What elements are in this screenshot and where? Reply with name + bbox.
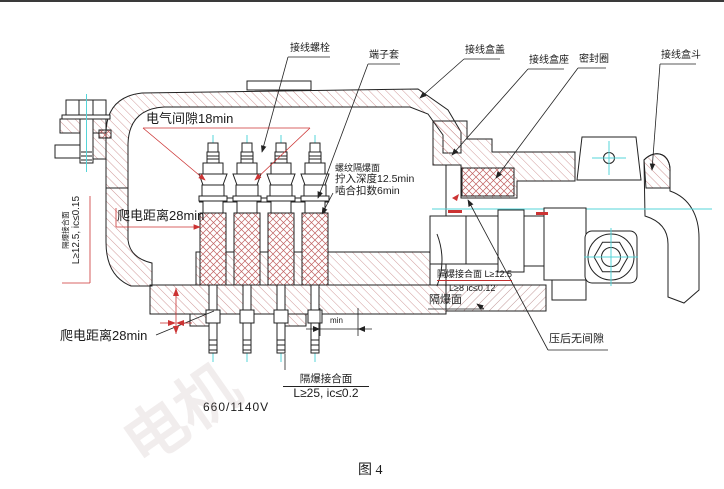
label-thread-flameproof-block: 螺纹隔爆面 拧入深度12.5min 啮合扣数6min [335,163,414,197]
label-engaged-threads: 啮合扣数6min [335,185,414,197]
label-flameproof-face: 隔爆面 [429,294,462,307]
label-terminal-sleeve: 端子套 [369,50,399,62]
label-terminal-bolt: 接线螺栓 [290,43,330,55]
label-box-seat: 接线盒座 [529,55,569,67]
figure-caption: 图 4 [358,463,383,479]
label-box-cover: 接线盒盖 [465,45,505,57]
label-left-flameproof-joint: 隔爆接合面 L≥12.5, ic≤0.15 [62,175,82,285]
label-creepage-distance-bottom: 爬电距离28min [60,329,147,344]
label-electrical-clearance: 电气间隙18min [146,112,233,127]
label-bottom-joint-spec: L≥25, ic≤0.2 [276,387,376,401]
label-screw-in-depth: 拧入深度12.5min [335,173,414,185]
label-bottom-joint-title: 隔爆接合面 [283,373,369,387]
label-right-joint-spec2: L≥8 ic≤0.12 [449,283,495,293]
drawing-page: 接线螺栓 端子套 接线盒盖 接线盒座 密封圈 接线盒斗 电气间隙18min 螺纹… [0,0,724,489]
label-creepage-distance-top: 爬电距离28min [117,209,204,224]
label-thread-flameproof-face: 螺纹隔爆面 [335,163,414,173]
label-right-joint-spec1: 隔爆接合面 L≥12.5 [437,269,512,281]
left-flange-bolt [55,94,111,172]
drawing-canvas [0,2,724,489]
label-left-joint-spec: L≥12.5, ic≤0.15 [71,175,83,285]
label-min-dimension: min [330,316,343,325]
label-box-hopper: 接线盒斗 [661,50,701,62]
label-left-joint-title: 隔爆接合面 [62,175,71,285]
label-no-gap-after-press: 压后无间隙 [549,333,604,346]
terminal-stud-3 [267,135,295,362]
terminal-stud-2 [233,135,261,362]
terminal-stud-1 [199,135,227,362]
label-seal-ring: 密封圈 [579,54,609,66]
label-bottom-flameproof-joint: 隔爆接合面 L≥25, ic≤0.2 [276,369,376,401]
